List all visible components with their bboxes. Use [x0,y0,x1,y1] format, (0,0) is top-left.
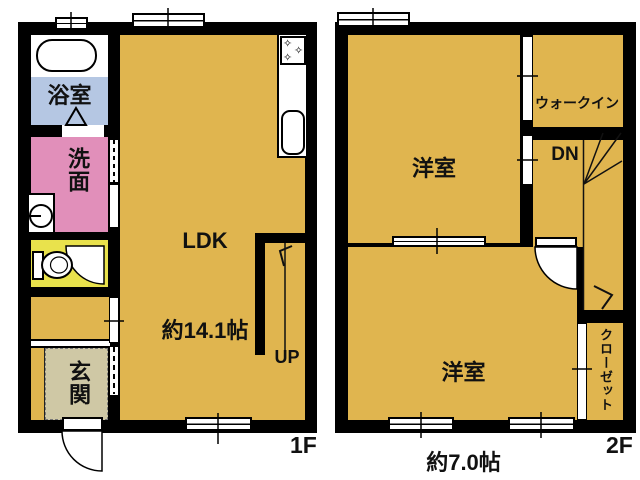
bathtub [36,39,97,72]
bedroom1-hall-door [522,135,533,185]
window [388,417,454,431]
stairs2-winder [583,140,623,184]
bedroom2-label-block: 洋室 約7.0帖 [350,298,577,480]
stove-burner-icon: ✧ [294,46,303,57]
stairs1-steps [265,243,305,352]
window [185,417,252,431]
closet-sliding-door [577,323,587,420]
floor2-label: 2F [606,431,633,461]
stove-burner-icon: ✧ [283,53,292,64]
kitchen-sink [281,110,305,155]
stairs1-label: UP [268,346,306,369]
bedroom1-wic-sliding-door [522,36,533,121]
closet-label: クローゼット [595,328,613,418]
window [337,12,410,27]
room-partition-sliding-door [392,236,486,247]
stairs1-wall-top [255,233,305,243]
hallway [31,297,110,339]
washroom-label: 洗面 [65,147,91,207]
stairs1-wall-left [255,233,265,355]
bedroom2-door-leaf [535,237,577,247]
window [132,13,205,28]
wash-basin-counter [27,193,55,234]
window [508,417,575,431]
stairs2-steps [583,184,623,310]
bedroom2-size: 約7.0帖 [350,448,577,478]
bathroom-label: 浴室 [31,82,108,111]
genkan-label: 玄関 [64,360,92,422]
genkan-step-edge [31,339,110,348]
stairs2-label: DN [545,143,585,168]
genkan-side-floor [31,348,45,420]
stove-burner-icon: ✧ [283,39,292,50]
toilet-room [31,240,108,287]
hallway-opening-dashed [110,347,118,395]
floor-plan-canvas: 浴室 洗面 玄関 LDK 約14.1帖 ✧ ✧ ✧ UP 1F 洋室 約8.1帖… [0,0,640,480]
washroom-sliding-door [109,139,119,183]
washroom-door-opening [109,184,119,228]
bathroom-door-opening [62,125,104,137]
bedroom2-label: 洋室 [350,358,577,388]
entrance-door-leaf [62,417,103,431]
window [55,17,88,30]
hallway-sliding-door [109,297,119,343]
floor1-label: 1F [290,431,317,461]
entrance-door-swing [62,431,102,471]
wic-line1: ウォークイン [531,94,623,112]
bedroom1-label: 洋室 [348,154,520,184]
